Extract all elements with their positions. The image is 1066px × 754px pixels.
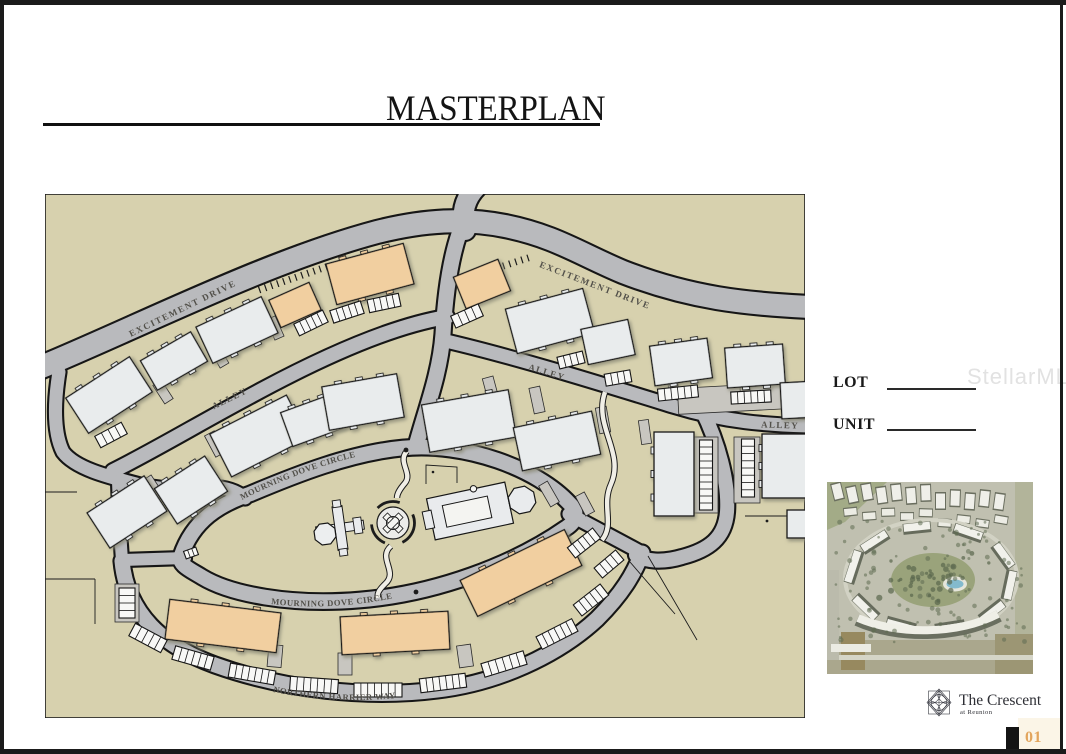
svg-text:ALLEY: ALLEY bbox=[761, 419, 799, 430]
